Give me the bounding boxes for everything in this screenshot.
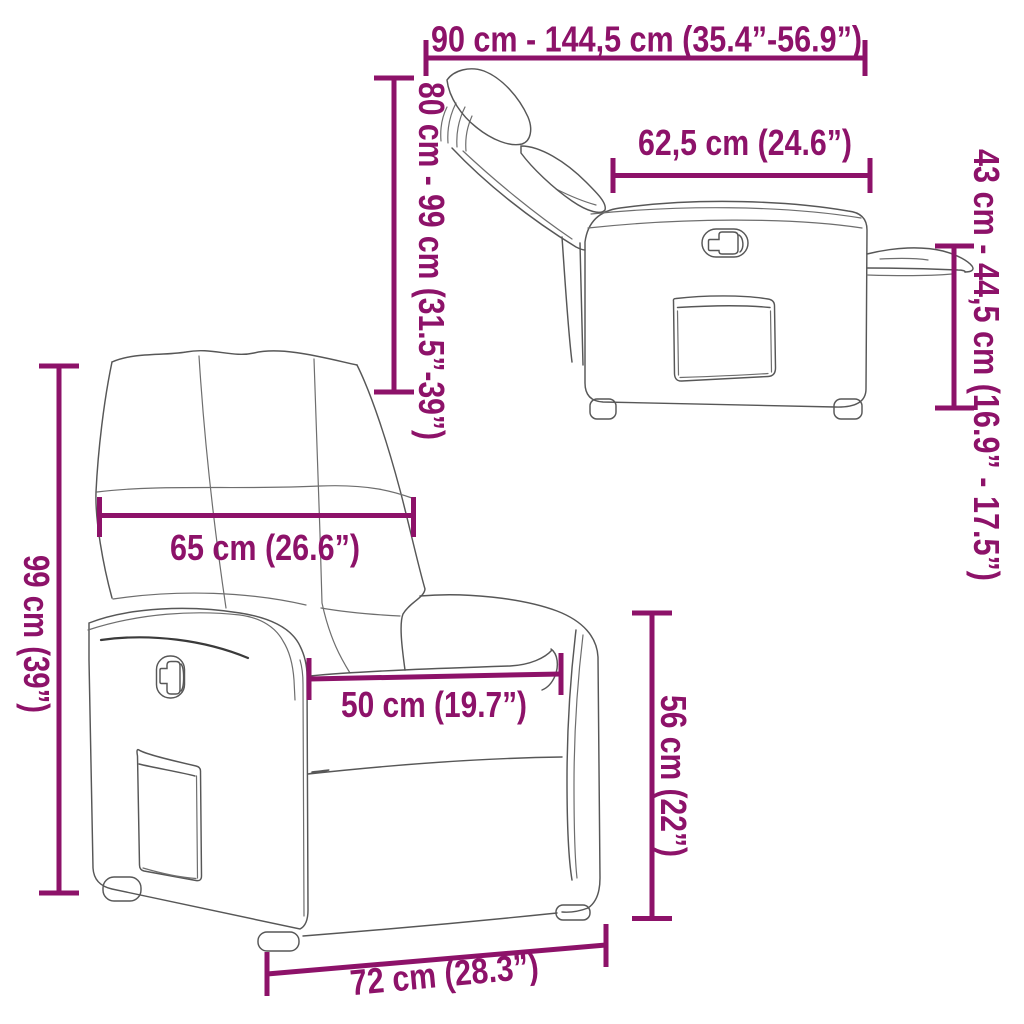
svg-text:50 cm (19.7”): 50 cm (19.7”): [341, 684, 527, 725]
svg-text:90 cm - 144,5 cm (35.4”-56.9”): 90 cm - 144,5 cm (35.4”-56.9”): [431, 19, 862, 60]
svg-text:65 cm (26.6”): 65 cm (26.6”): [170, 527, 360, 568]
svg-text:43 cm - 44,5 cm (16.9” - 17.5”: 43 cm - 44,5 cm (16.9” - 17.5”): [966, 149, 1007, 581]
svg-text:80 cm - 99 cm (31.5”-39”): 80 cm - 99 cm (31.5”-39”): [411, 82, 452, 440]
svg-text:99 cm (39”): 99 cm (39”): [16, 555, 57, 713]
svg-text:56 cm (22”): 56 cm (22”): [653, 695, 694, 857]
svg-text:62,5 cm (24.6”): 62,5 cm (24.6”): [638, 122, 852, 163]
